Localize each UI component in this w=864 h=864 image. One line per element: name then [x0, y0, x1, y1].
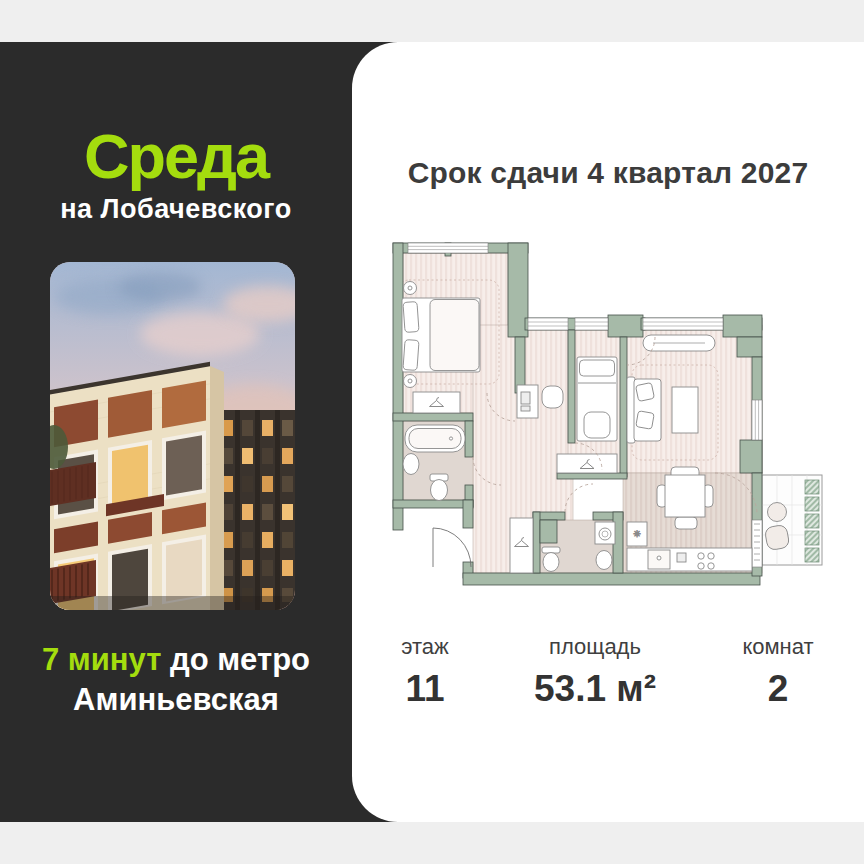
- washing-machine: [595, 522, 615, 544]
- metro-distance: 7 минут до метро Аминьевская: [0, 640, 352, 720]
- building-render: [50, 262, 295, 610]
- building-photo: [50, 262, 295, 610]
- wc-sink: [596, 551, 612, 570]
- metro-station: Аминьевская: [73, 682, 279, 717]
- coffee-table: [672, 387, 698, 433]
- metro-minutes: 7 минут: [42, 642, 161, 677]
- dark-building: [218, 410, 295, 610]
- metro-text: до метро: [161, 642, 310, 677]
- dining-table: [665, 475, 705, 517]
- hob-control: [677, 553, 686, 562]
- stat-floor: этаж 11: [401, 634, 449, 710]
- sofa-pillow: [636, 411, 655, 430]
- balcony-door: [752, 520, 762, 567]
- brand-logo-subtitle: на Лобачевского: [0, 194, 352, 225]
- stat-area-value: 53.1 м²: [534, 668, 656, 710]
- info-panel: Срок сдачи 4 квартал 2027: [352, 42, 864, 822]
- balcony-tiles: [805, 480, 819, 562]
- kitchen-counter: [627, 548, 752, 571]
- listing-card: { "card": { "background_color": "#efefef…: [0, 0, 864, 864]
- corridor-wardrobe: [510, 518, 533, 573]
- stat-floor-label: этаж: [401, 634, 449, 660]
- stat-area: площадь 53.1 м²: [534, 634, 656, 710]
- pouf: [542, 386, 563, 408]
- stat-area-label: площадь: [534, 634, 656, 660]
- entry-door: [433, 528, 471, 567]
- cream-building: [50, 362, 224, 610]
- stat-rooms: комнат 2: [742, 634, 813, 710]
- sink: [403, 454, 419, 475]
- brand-logo: Среда: [0, 120, 352, 192]
- balcony-table: [768, 503, 787, 522]
- stat-rooms-value: 2: [742, 668, 813, 710]
- wardrobe: [413, 392, 460, 413]
- deadline-title: Срок сдачи 4 квартал 2027: [352, 156, 864, 190]
- stat-floor-value: 11: [401, 668, 449, 710]
- chair: [675, 517, 697, 529]
- floor-plan: ✳: [385, 240, 825, 595]
- snowflake-icon: ✳: [633, 529, 641, 539]
- stat-rooms-label: комнат: [742, 634, 813, 660]
- armchair: [584, 412, 610, 438]
- foreground-shadow: [50, 596, 295, 610]
- balcony: [762, 475, 822, 565]
- wardrobe: [557, 454, 617, 473]
- sofa-pillow: [636, 383, 655, 402]
